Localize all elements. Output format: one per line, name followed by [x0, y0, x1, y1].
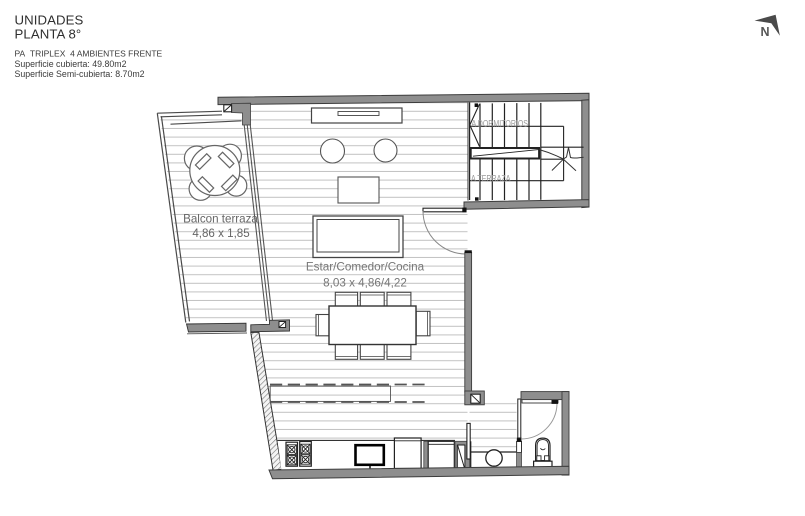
- svg-text:Superficie cubierta: 49.80m2: Superficie cubierta: 49.80m2: [15, 59, 127, 69]
- svg-text:PLANTA 8°: PLANTA 8°: [15, 27, 82, 42]
- svg-text:4,86 x 1,85: 4,86 x 1,85: [192, 227, 249, 240]
- svg-text:A DORMITORIOS: A DORMITORIOS: [472, 118, 529, 128]
- svg-text:Superficie Semi-cubierta: 8.70: Superficie Semi-cubierta: 8.70m2: [15, 69, 145, 79]
- svg-text:Balcon terraza: Balcon terraza: [183, 213, 258, 226]
- svg-text:A TERRAZA: A TERRAZA: [471, 173, 511, 183]
- svg-text:8,03 x 4,86/4,22: 8,03 x 4,86/4,22: [323, 277, 407, 290]
- svg-text:UNIDADES: UNIDADES: [15, 13, 84, 28]
- svg-text:PA TRIPLEX 4 AMBIENTES FRENT: PA TRIPLEX 4 AMBIENTES FRENTE: [15, 49, 163, 59]
- svg-text:N: N: [761, 25, 770, 39]
- svg-text:Estar/Comedor/Cocina: Estar/Comedor/Cocina: [306, 261, 425, 274]
